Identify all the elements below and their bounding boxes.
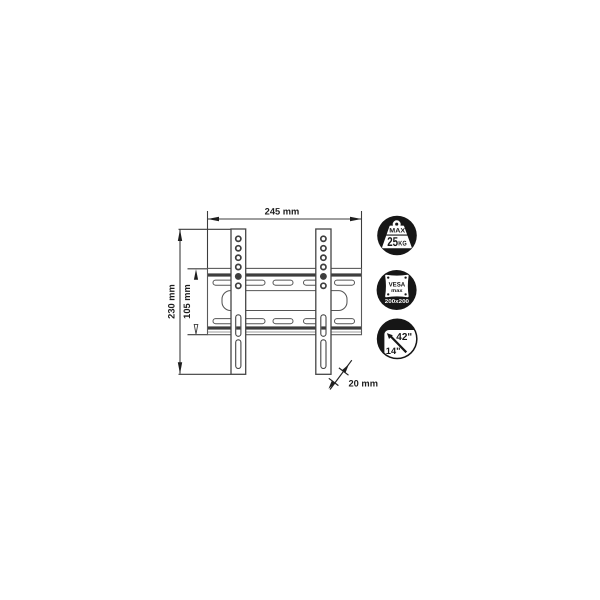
svg-text:230 mm: 230 mm bbox=[167, 284, 177, 319]
svg-text:42": 42" bbox=[396, 332, 412, 343]
svg-text:25: 25 bbox=[387, 234, 398, 249]
svg-text:20 mm: 20 mm bbox=[349, 378, 378, 388]
svg-text:max: max bbox=[391, 288, 403, 294]
svg-text:105 mm: 105 mm bbox=[182, 284, 192, 319]
svg-text:245 mm: 245 mm bbox=[265, 207, 300, 217]
svg-text:14": 14" bbox=[386, 346, 401, 356]
svg-text:200x200: 200x200 bbox=[385, 299, 409, 305]
svg-text:KG: KG bbox=[398, 241, 406, 248]
